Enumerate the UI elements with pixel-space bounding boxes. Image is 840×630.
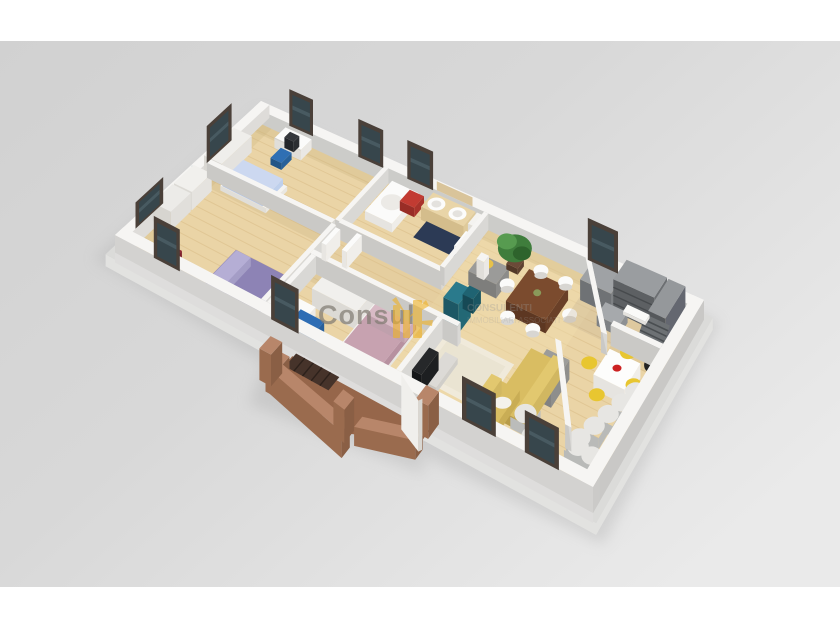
- svg-text:Consul: Consul: [318, 300, 416, 330]
- svg-text:IMMOBILIARI ASSOCIATI: IMMOBILIARI ASSOCIATI: [467, 316, 560, 325]
- svg-text:CONSULENTI: CONSULENTI: [467, 303, 532, 314]
